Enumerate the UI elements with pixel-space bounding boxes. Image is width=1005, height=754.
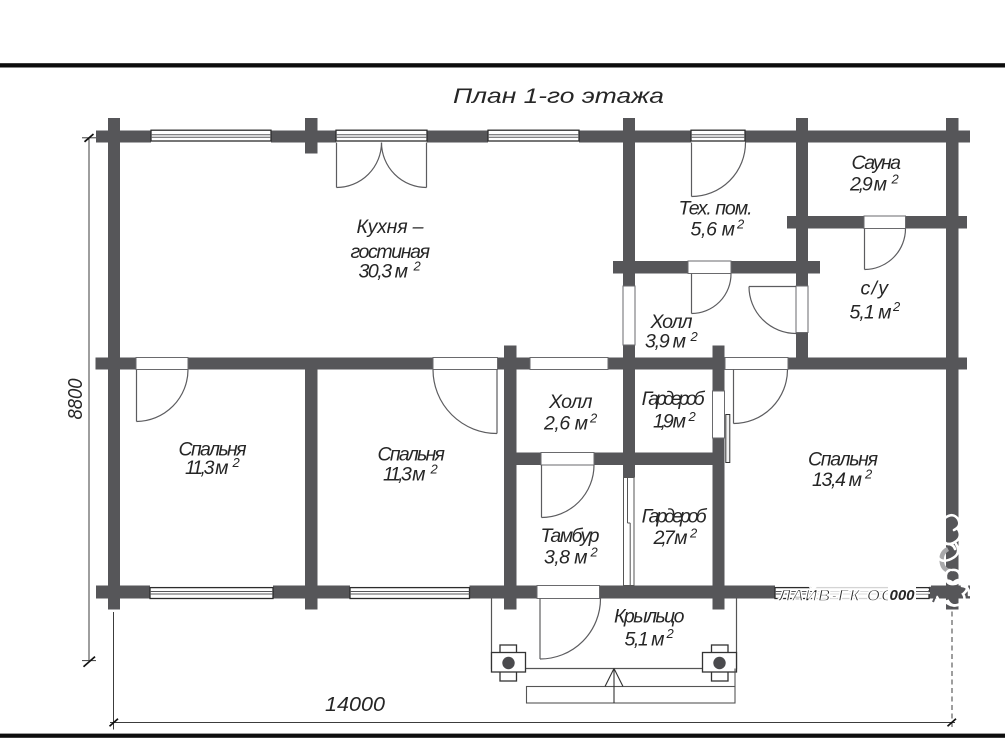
svg-text:Кухня –: Кухня – <box>357 216 424 238</box>
svg-text:13,4 м: 13,4 м <box>812 469 862 491</box>
svg-text:2: 2 <box>666 626 675 641</box>
svg-text:2,6 м: 2,6 м <box>543 413 588 435</box>
svg-text:8800: 8800 <box>65 379 87 420</box>
svg-text:000: 000 <box>889 587 915 604</box>
svg-text:2: 2 <box>736 217 745 232</box>
svg-text:5,1 м: 5,1 м <box>850 302 892 324</box>
svg-text:Гардероб: Гардероб <box>642 506 708 528</box>
svg-text:2: 2 <box>232 455 241 470</box>
svg-text:3,8 м: 3,8 м <box>544 547 588 569</box>
svg-text:ЛАЙВ-ГК ОСП: ЛАЙВ-ГК ОСП <box>777 585 907 605</box>
svg-text:2,9 м: 2,9 м <box>849 174 887 196</box>
svg-text:5,6 м: 5,6 м <box>691 219 736 241</box>
svg-text:11,3 м: 11,3 м <box>185 457 229 479</box>
svg-text:2: 2 <box>590 545 599 560</box>
svg-text:Холл: Холл <box>548 391 593 413</box>
svg-text:3,9 м: 3,9 м <box>645 331 686 353</box>
svg-text:2: 2 <box>430 462 439 477</box>
svg-text:Крыльцо: Крыльцо <box>614 606 685 628</box>
svg-text:14000: 14000 <box>325 694 385 716</box>
svg-text:2: 2 <box>689 526 698 541</box>
svg-text:11,3 м: 11,3 м <box>383 464 426 486</box>
svg-text:30,3 м: 30,3 м <box>359 261 409 283</box>
svg-text:2: 2 <box>891 172 900 187</box>
svg-text:2,7 м: 2,7 м <box>653 527 688 549</box>
svg-text:2: 2 <box>688 409 697 424</box>
svg-text:2: 2 <box>892 299 901 314</box>
svg-text:2: 2 <box>589 411 598 426</box>
svg-text:План 1-го этажа: План 1-го этажа <box>453 84 664 108</box>
svg-text:Гардероб: Гардероб <box>642 388 706 410</box>
svg-text:2: 2 <box>413 259 422 274</box>
svg-text:1,9 м: 1,9 м <box>653 411 686 433</box>
svg-text:с/у: с/у <box>861 278 890 300</box>
svg-text:5,1 м: 5,1 м <box>625 629 665 651</box>
svg-text:2: 2 <box>690 329 699 344</box>
svg-text:2: 2 <box>864 467 873 482</box>
